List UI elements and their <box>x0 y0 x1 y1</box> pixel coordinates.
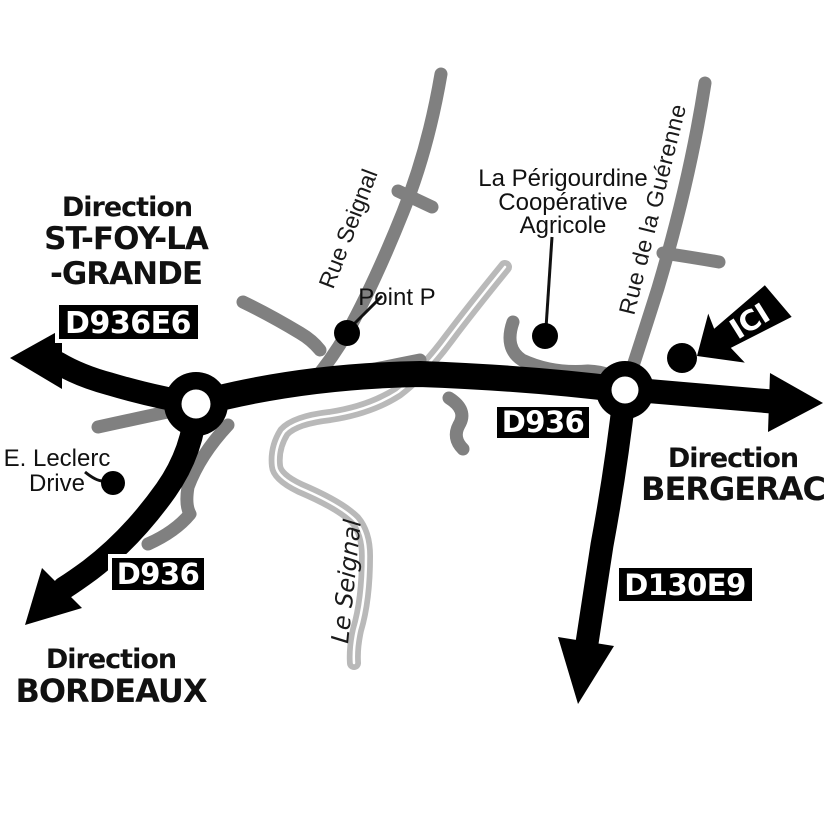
here-location-dot <box>667 343 697 373</box>
rue-seignal-road <box>310 74 441 385</box>
access-map: D936E6 D936 D936 D130E9 ICI Direction ST… <box>0 0 828 827</box>
road-to-bergerac <box>648 391 778 402</box>
leclerc-leader-line <box>85 472 103 481</box>
badge-d936-center-label: D936 <box>502 405 585 439</box>
arrowhead-west-icon <box>10 329 62 389</box>
arrowhead-east-icon <box>768 373 823 432</box>
map-canvas: D936E6 D936 D936 D130E9 ICI Direction ST… <box>0 0 828 827</box>
cooperative-label-line1: La Périgourdine <box>478 165 647 192</box>
destination-labels: Direction ST-FOY-LA -GRANDE Direction BE… <box>15 192 825 710</box>
st-foy-name-line2: -GRANDE <box>50 256 202 292</box>
point-p-label: Point P <box>358 284 435 311</box>
roundabout-east-center <box>612 377 639 404</box>
badge-d130e9-label: D130E9 <box>624 568 746 602</box>
direction-st-foy-word: Direction <box>62 192 192 223</box>
badge-d936e6-label: D936E6 <box>65 306 191 341</box>
cooperative-leader-line <box>546 237 552 328</box>
leclerc-dot <box>101 471 125 495</box>
cooperative-dot <box>532 323 558 349</box>
here-marker: ICI <box>681 277 799 382</box>
guerenne-branch-road <box>663 253 719 262</box>
bergerac-name: BERGERAC <box>641 470 825 508</box>
river-le-seignal <box>276 267 505 663</box>
st-foy-name-line1: ST-FOY-LA <box>44 221 209 257</box>
south-stub-road <box>449 398 463 449</box>
badge-d936-southwest-label: D936 <box>117 557 200 591</box>
cooperative-label-line3: Agricole <box>520 212 607 239</box>
direction-bordeaux-word: Direction <box>46 644 176 675</box>
point-p-dot <box>334 320 360 346</box>
river-ribbon <box>276 267 505 663</box>
bordeaux-name: BORDEAUX <box>15 672 207 710</box>
river-inner-line <box>276 267 505 663</box>
route-badges: D936E6 D936 D936 D130E9 <box>57 303 754 603</box>
leclerc-label-line2: Drive <box>29 470 85 497</box>
roundabout-west-center <box>182 390 211 419</box>
west-side-road <box>243 302 320 350</box>
arrowhead-south-icon <box>558 637 614 704</box>
leclerc-label-line1: E. Leclerc <box>4 445 111 472</box>
